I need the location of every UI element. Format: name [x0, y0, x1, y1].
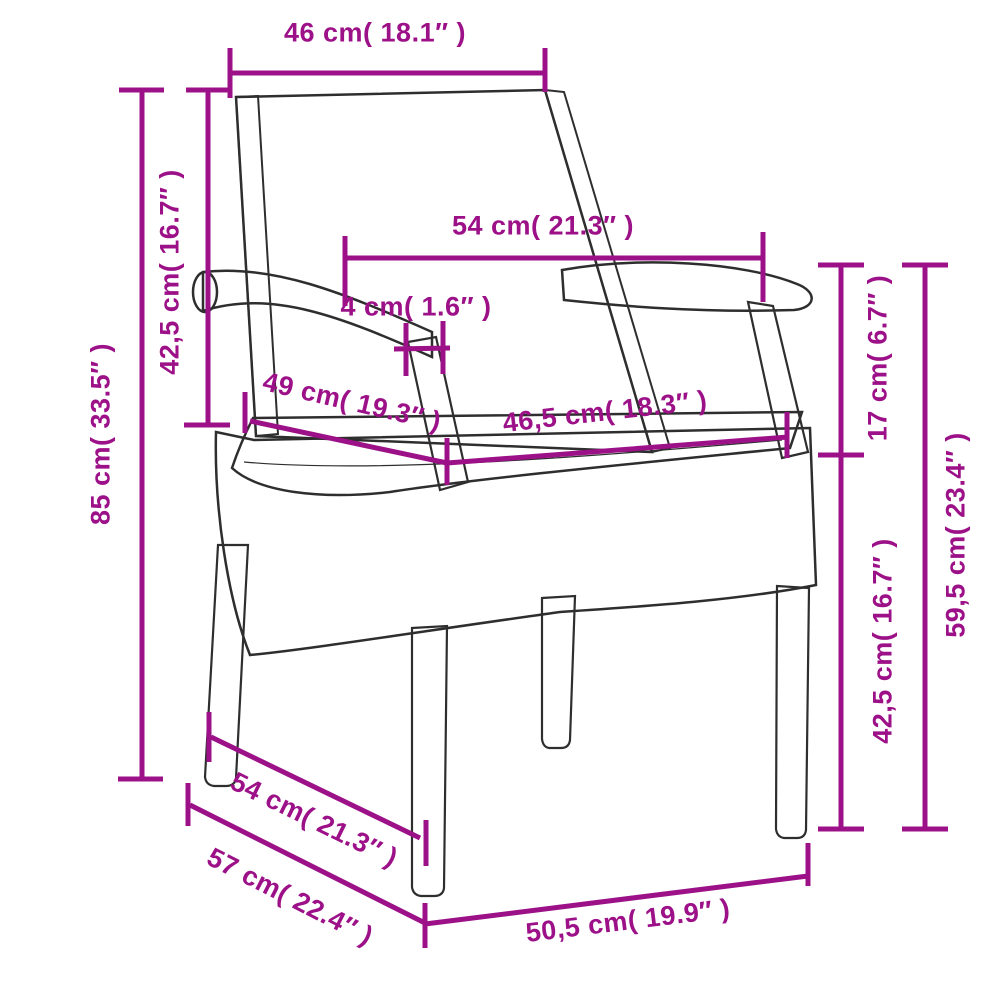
dim-label-backrest-height: 42,5 cm( 16.7″ ) [155, 169, 186, 375]
chair-leg-rear-right [542, 596, 575, 748]
chair-illustration [0, 0, 1000, 1000]
dimension-diagram: 46 cm( 18.1″ ) 54 cm( 21.3″ ) 4 cm( 1.6″… [0, 0, 1000, 1000]
chair-seat-base [216, 428, 816, 655]
dim-label-armrest-to-seat: 17 cm( 6.7″ ) [863, 275, 894, 442]
dim-line-armrest-thickness [394, 321, 450, 376]
dim-label-back-width: 46 cm( 18.1″ ) [284, 18, 466, 49]
dim-label-armrest-height: 59,5 cm( 23.4″ ) [941, 432, 972, 638]
dim-line-armrest-to-seat [818, 265, 864, 455]
dim-label-back-inner-width: 54 cm( 21.3″ ) [452, 211, 634, 242]
dim-label-total-height: 85 cm( 33.5″ ) [86, 343, 117, 525]
chair-leg-front-left [412, 626, 447, 896]
dim-line-backrest-height [184, 90, 230, 425]
dim-label-seat-height: 42,5 cm( 16.7″ ) [868, 538, 899, 744]
chair-leg-front-right [776, 586, 809, 838]
dim-line-seat-height [818, 455, 864, 829]
dim-label-armrest-thickness: 4 cm( 1.6″ ) [341, 292, 492, 323]
